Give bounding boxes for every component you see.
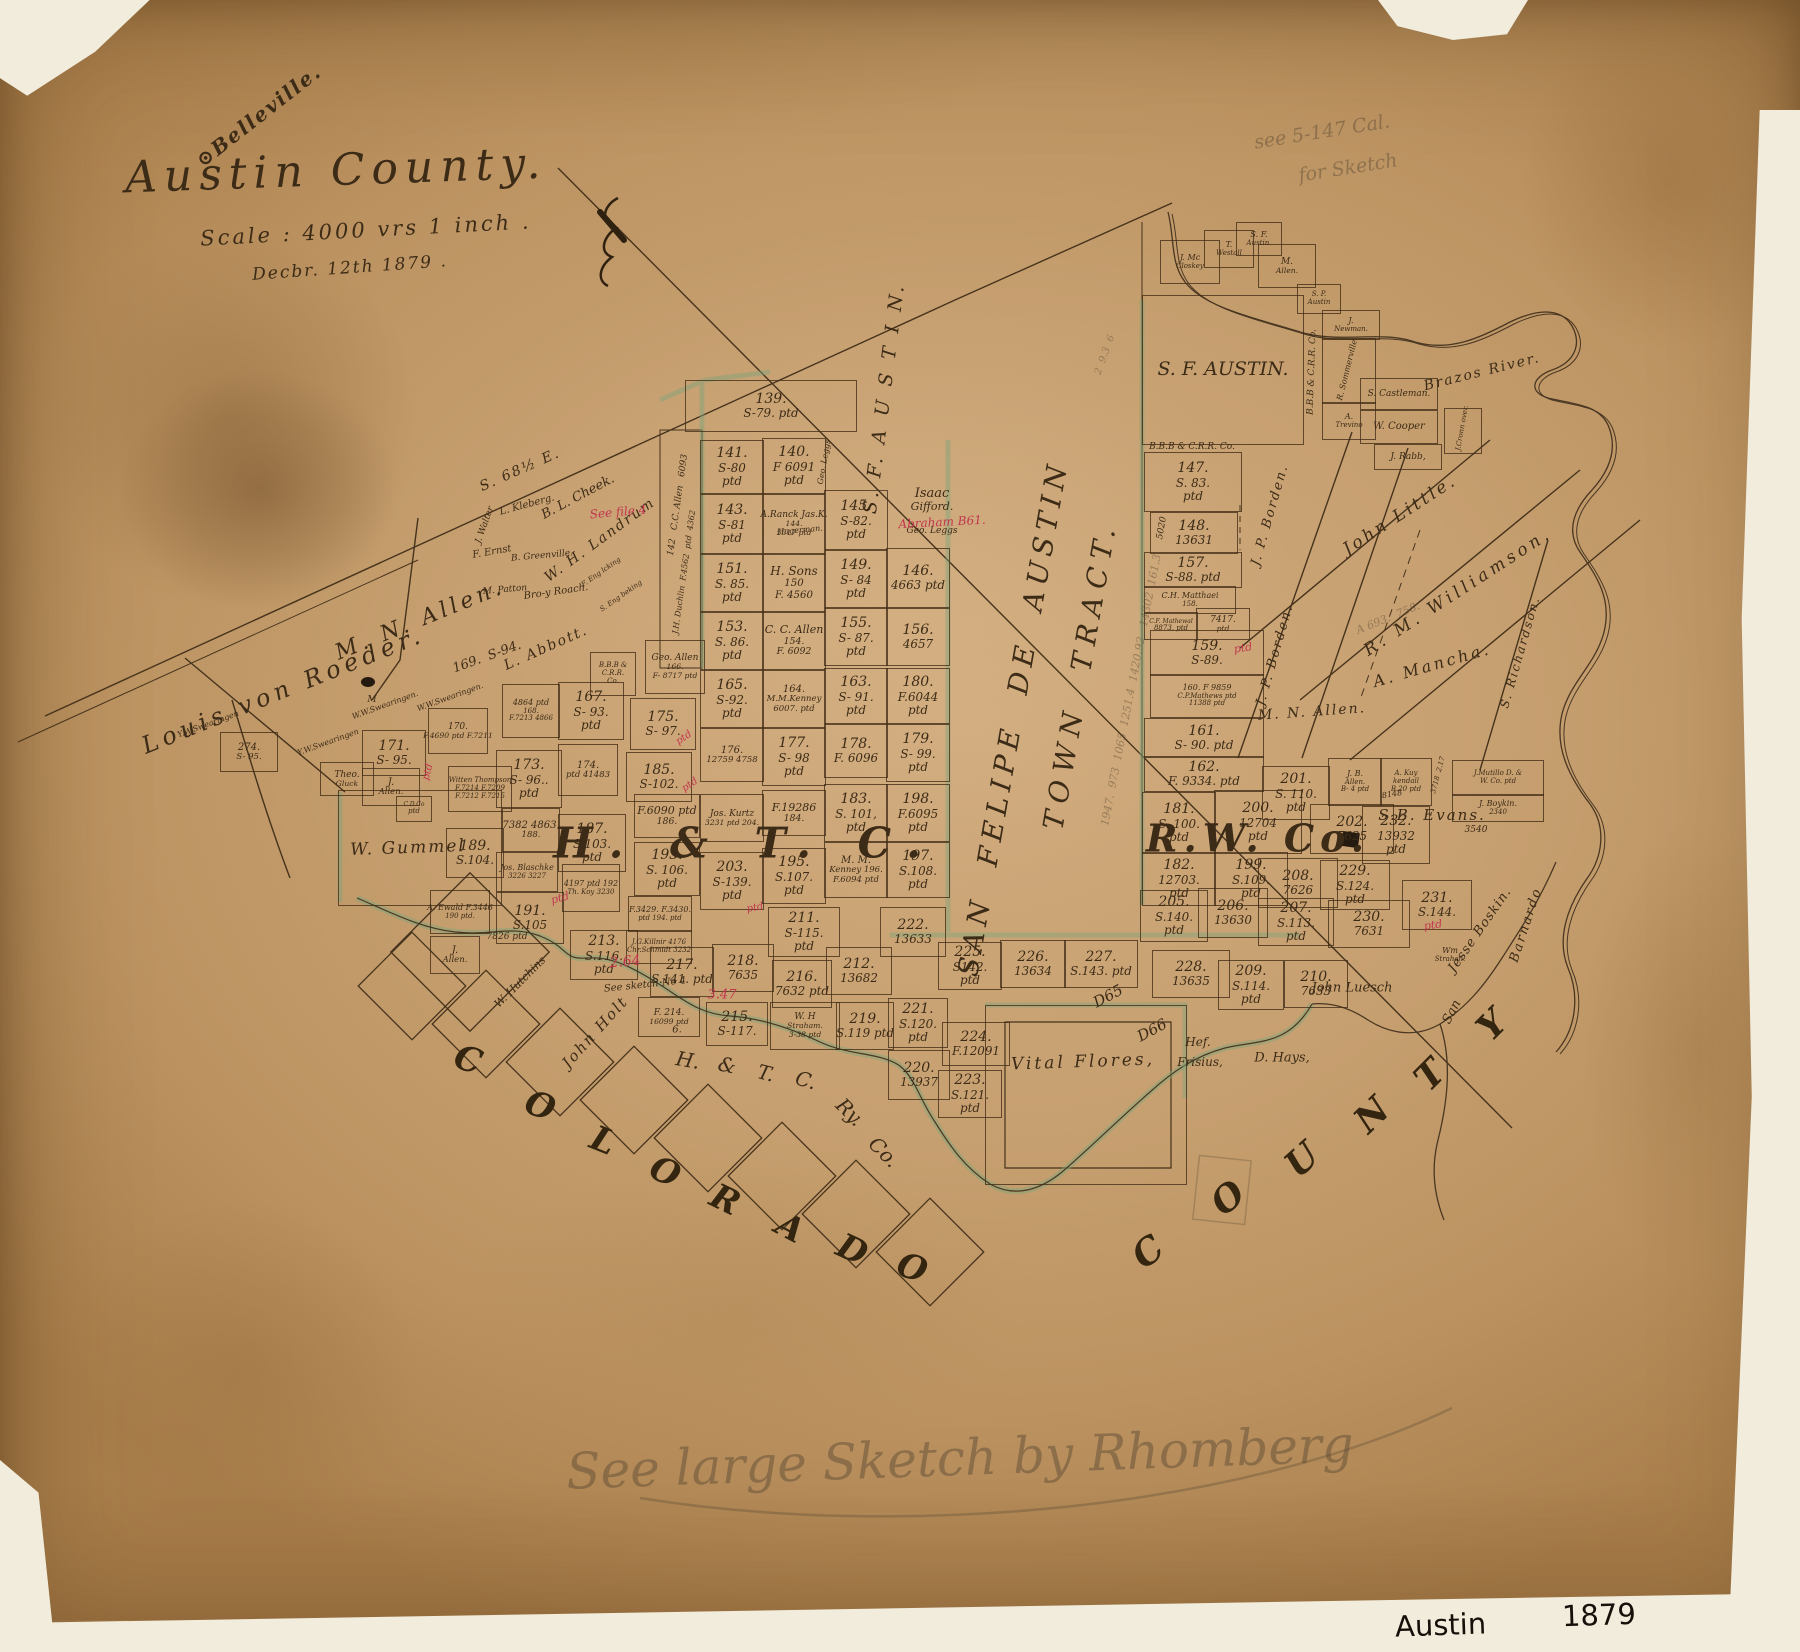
owner-label: S. 68½ E. xyxy=(477,445,563,495)
owner-label: F. Ernst xyxy=(472,543,513,561)
owner-label: Geo. Leggs xyxy=(816,439,833,485)
colorado-county-letter: O xyxy=(643,1148,686,1197)
owner-label: D. Hays, xyxy=(1254,1051,1309,1066)
annotation-red: Abraham B61. xyxy=(898,513,986,532)
owner-label: John Little. xyxy=(1339,471,1460,559)
owner-label: M xyxy=(367,695,376,705)
owner-label: J. P. Borden. xyxy=(1248,462,1291,567)
owner-label: J.Cronn over. xyxy=(1454,405,1470,451)
owner-label: H. & T. C. xyxy=(553,819,937,868)
colorado-county-letter: R xyxy=(704,1176,747,1224)
owner-label: B.B.B & C.R.R. Co. xyxy=(1306,329,1319,415)
owner-label: S. Eng beking xyxy=(598,579,643,614)
htc-railway-letter: Ry. xyxy=(831,1093,869,1131)
county-word-letter: O xyxy=(1202,1172,1253,1224)
owner-label: Y.W.Swearingen xyxy=(296,727,360,758)
archive-label-year: 1879 xyxy=(1561,1597,1636,1634)
owner-label: Frisius, xyxy=(1177,1055,1223,1069)
htc-railway-letter: T. xyxy=(755,1059,777,1086)
annotation-pencil: see 5-147 Cal. xyxy=(1253,110,1392,153)
owner-label: S.B. Evans. xyxy=(1378,806,1486,824)
colorado-county-letter: O xyxy=(891,1244,933,1292)
colorado-county-letter: O xyxy=(519,1082,561,1130)
owner-label: S. F. A U S T I N. xyxy=(859,281,909,515)
htc-railway-letter: & xyxy=(716,1051,738,1078)
owner-label: 5020 xyxy=(1155,516,1169,540)
annotation-pencil: See large Sketch by Rhomberg xyxy=(565,1415,1354,1500)
htc-railway-letter: H. xyxy=(674,1046,702,1074)
owner-label: M. N. Allen. xyxy=(1257,700,1366,724)
colorado-county-letter: D xyxy=(830,1226,874,1275)
owner-label: San xyxy=(1440,997,1465,1026)
annotation-red: ptd xyxy=(1233,640,1253,655)
owner-label: Hef. xyxy=(1185,1035,1210,1049)
owner-label: Hagerman. xyxy=(777,524,823,537)
annotation-pencil: for Sketch xyxy=(1297,149,1399,186)
owner-label: F. Eng lcking xyxy=(580,555,622,588)
owner-label: Barnardo xyxy=(1507,886,1545,965)
owner-label: D66 xyxy=(1134,1015,1170,1046)
owner-label: D65 xyxy=(1090,981,1126,1012)
annotation-red: ptd xyxy=(746,901,764,915)
archive-label-austin: Austin xyxy=(1394,1606,1486,1643)
annotation-red: 3.47 xyxy=(708,988,737,1003)
owner-label: W. Hutchins xyxy=(492,954,549,1011)
owner-label: R. Sommerville xyxy=(1335,339,1359,401)
owner-label: John Luesch xyxy=(1312,981,1393,996)
owner-label: 3718 2.17 xyxy=(1429,756,1447,795)
colorado-county-letter: C xyxy=(449,1037,487,1083)
owner-label: J. P. Borden. xyxy=(1253,602,1296,707)
owner-label: W. Gummel xyxy=(350,836,466,860)
htc-railway-letter: Co. xyxy=(864,1132,905,1173)
county-word-letter: T xyxy=(1406,1051,1455,1100)
owner-label: W.W.Swearingen. xyxy=(416,681,485,713)
owner-label: See sketch No 4 xyxy=(603,975,686,995)
owner-label: Vital Flores, xyxy=(1011,1049,1156,1074)
labels-layer: Louis von Roeder.M. N. Allen.W. H. Landr… xyxy=(0,0,1800,1652)
annotation-pencil: 2 9.3 6 xyxy=(1093,334,1117,377)
annotation-red: ptd xyxy=(549,889,570,906)
owner-label: John Holt xyxy=(558,993,632,1072)
annotation-red: ptd xyxy=(680,776,700,795)
owner-label: Brazos River. xyxy=(1422,350,1542,394)
owner-label: W.W.Swearingen. xyxy=(351,689,420,721)
annotation-red: ptd xyxy=(421,762,436,781)
owner-label: S. Richardson. xyxy=(1497,594,1543,710)
county-word-letter: U xyxy=(1276,1134,1327,1186)
owner-label: J. Walter xyxy=(474,505,497,545)
owner-label: 6. xyxy=(672,1025,682,1036)
annotation-red: ptd xyxy=(1423,917,1443,932)
map-page: 139.S-79. ptd141.S-80ptd140.F 6091ptd143… xyxy=(0,0,1800,1652)
annotation-red: 2.64 xyxy=(609,953,641,972)
owner-label: Bro-y Roach. xyxy=(523,582,589,602)
colorado-county-letter: A xyxy=(769,1204,811,1252)
colorado-county-letter: L xyxy=(584,1118,621,1164)
county-word-letter: C xyxy=(1124,1227,1172,1278)
owner-label: 3540 xyxy=(1465,825,1488,835)
annotation-red: ptd xyxy=(674,729,694,748)
owner-label: 8148 xyxy=(1381,788,1403,800)
owner-label: Jesse Boskin. xyxy=(1445,885,1514,975)
county-word-letter: N xyxy=(1346,1088,1399,1141)
htc-railway-letter: C. xyxy=(793,1066,820,1095)
county-word-letter: Y xyxy=(1468,1001,1516,1049)
owner-label: B.B.B & C.R.R. Co. xyxy=(1149,442,1235,452)
owner-label: R.W. Co. xyxy=(1146,816,1370,861)
